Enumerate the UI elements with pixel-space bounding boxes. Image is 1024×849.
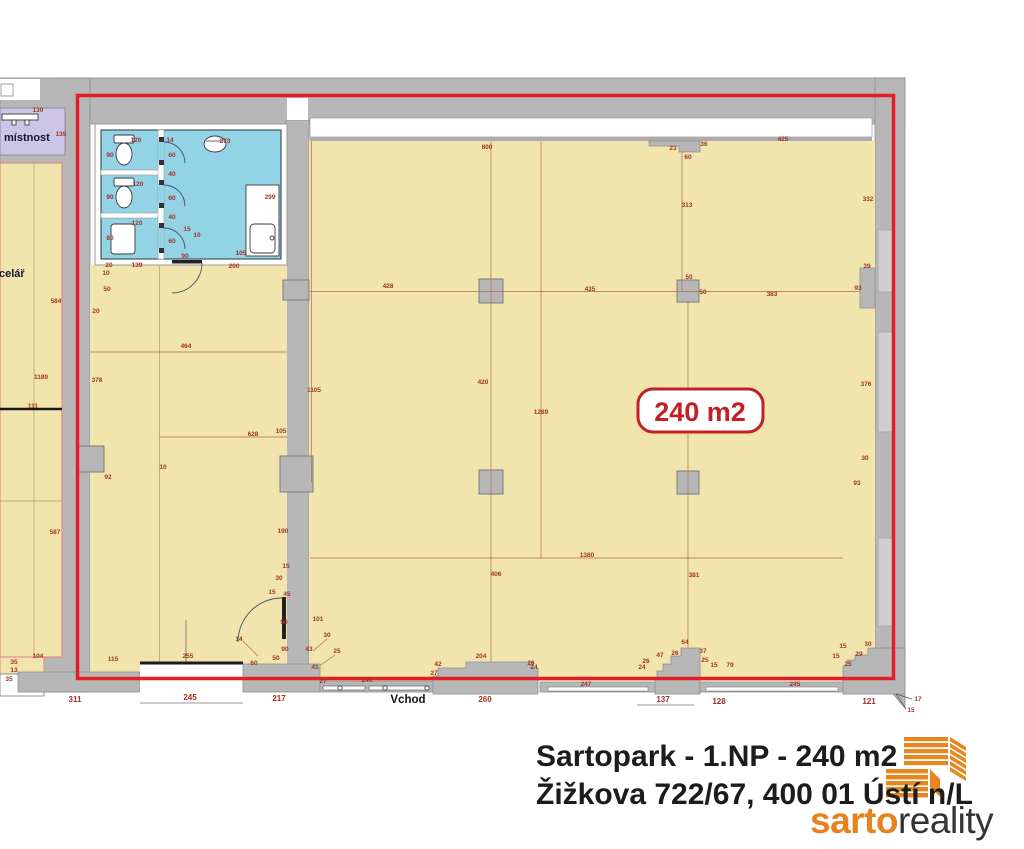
dimension-label: 15 [832,653,840,660]
dimension-label: 45 [283,591,291,598]
dimension-label: 800 [482,144,493,151]
column [78,446,104,472]
dimension-label: 35 [5,676,13,683]
dimension-label: 130 [33,107,44,114]
dimension-label: 1105 [307,387,321,394]
dimension-label: 50 [685,274,693,281]
dimension-label: 378 [92,377,103,384]
dimension-label: 26 [671,650,679,657]
dimension-label: 10 [102,270,110,277]
dimension-label: 64 [681,639,689,646]
dimension-label: 23 [669,145,677,152]
dimension-label: 39 [863,263,871,270]
dimension-label: 425 [778,136,789,143]
entrance-door [320,681,433,692]
dimension-label: 245 [790,681,801,688]
column [677,280,699,302]
dimension-label: 299 [265,194,276,201]
dimension-label: 105 [276,428,287,435]
dimension-label: 15 [839,643,847,650]
footer-title: Sartopark - 1.NP - 240 m2 [536,740,897,774]
dimension-label: 93 [854,285,862,292]
dimension-label: 60 [168,152,176,159]
dimension-label: 17 [914,696,922,703]
dimension-label: 20 [105,262,113,269]
dimension-label: 128 [712,697,726,706]
dimension-label: 80 [106,235,114,242]
dimension-label: 90 [280,619,288,626]
dimension-label: 43 [305,646,313,653]
dimension-label: 406 [491,571,502,578]
room-label-mistnost: místnost [4,132,50,144]
dimension-label: 105 [236,250,247,257]
column [283,280,309,300]
area-badge-label: 240 m2 [654,397,746,427]
dimension-label: 50 [272,655,280,662]
dimension-label: 14 [166,137,174,144]
dimension-label: 313 [682,202,693,209]
dimension-label: 92 [104,474,112,481]
dimension-label: 27 [319,678,327,685]
area-badge: 240 m2 [638,389,763,432]
dimension-label: 20 [92,308,100,315]
dimension-label: 1380 [580,552,595,559]
dimension-label: 311 [69,695,82,704]
dimension-label: 115 [108,656,119,663]
dimension-label: 246 [362,677,373,684]
dimension-label: 24 [530,664,538,671]
dimension-label: 101 [313,616,324,623]
dimension-label: 120 [131,137,142,144]
dimension-label: 628 [248,431,259,438]
dimension-label: 376 [861,381,872,388]
room-label-kancelar: celář [0,268,25,280]
dimension-label: 25 [844,661,852,668]
dimension-label: 60 [168,238,176,245]
dimension-label: 464 [181,343,192,350]
dimension-label: 435 [585,286,596,293]
dimension-label: 10 [193,232,201,239]
dimension-label: 24 [638,664,646,671]
dimension-label: 15 [710,662,718,669]
dimension-label: 26 [642,658,650,665]
radiator-symbol [2,114,38,120]
dimension-label: 1289 [534,409,549,416]
column [280,456,313,492]
dimension-label: 90 [281,646,289,653]
dimension-label: 93 [853,480,861,487]
dimension-label: 245 [183,693,197,702]
dimension-label: 90 [181,253,189,260]
room-kancelar [0,163,62,696]
dimension-label: 420 [478,379,489,386]
dimension-label: 42 [434,661,442,668]
dimension-label: 255 [183,653,194,660]
dimension-label: 40 [168,171,176,178]
dimension-label: 584 [51,298,62,305]
dimension-label: 60 [168,195,176,202]
dimension-label: 47 [656,652,664,659]
room-left-hall [90,265,287,683]
dimension-label: 37 [699,648,707,655]
dimension-label: 247 [581,681,592,688]
dimension-label: 381 [689,572,700,579]
dimension-label: 121 [862,697,876,706]
dimension-label: 10 [159,464,167,471]
dimension-label: 190 [278,528,289,535]
dimension-label: 15 [268,589,276,596]
dimension-label: 120 [133,181,144,188]
dimension-label: 383 [767,291,778,298]
dimension-label: 25 [333,648,341,655]
window-strip [310,118,872,137]
dimension-label: 29 [855,651,863,658]
dimension-label: 200 [229,263,240,270]
dimension-label: 50 [103,286,111,293]
floor-plan-page: 240 m2 místnost celář Vchod 130135584118… [0,0,1024,849]
dimension-label: 30 [323,632,331,639]
dimension-label: 332 [863,196,874,203]
dimension-label: 27 [430,670,438,677]
dimension-label: 13 [10,667,18,674]
dimension-label: 273 [220,138,231,145]
dimension-label: 30 [864,641,872,648]
dimension-label: 104 [33,653,44,660]
footer-address: Žižkova 722/67, 400 01 Ústí n/L [536,778,973,812]
dimension-label: 14 [235,636,243,643]
dimension-label: 1189 [34,374,48,381]
dimension-label: 41 [311,664,319,671]
dimension-label: 15 [183,226,191,233]
dimension-label: 30 [275,575,283,582]
dimension-label: 15 [282,563,290,570]
dimension-label: 60 [250,660,258,667]
dimension-label: 135 [56,131,67,138]
dimension-label: 35 [10,659,18,666]
dimension-label: 428 [383,283,394,290]
floor-plan-drawing: 240 m2 místnost celář Vchod 130135584118… [0,0,1024,730]
dimension-label: 204 [476,653,487,660]
dimension-label: 90 [106,194,114,201]
dimension-label: 40 [168,214,176,221]
dimension-label: 111 [28,403,39,410]
dimension-label: 90 [106,152,114,159]
entrance-label: Vchod [390,694,425,706]
dimension-label: 50 [699,289,707,296]
dimension-label: 36 [700,141,708,148]
dimension-label: 60 [684,154,692,161]
dimension-label: 79 [726,662,734,669]
dimension-label: 260 [478,695,492,704]
dimension-label: 137 [656,695,670,704]
dimension-label: 30 [861,455,869,462]
dimension-label: 25 [701,657,709,664]
dimension-label: 120 [132,220,143,227]
dimension-label: 217 [272,694,286,703]
shower-tray-icon [111,224,135,254]
dimension-label: 15 [907,707,915,714]
dimension-label: 139 [132,262,143,269]
dimension-label: 587 [50,529,61,536]
